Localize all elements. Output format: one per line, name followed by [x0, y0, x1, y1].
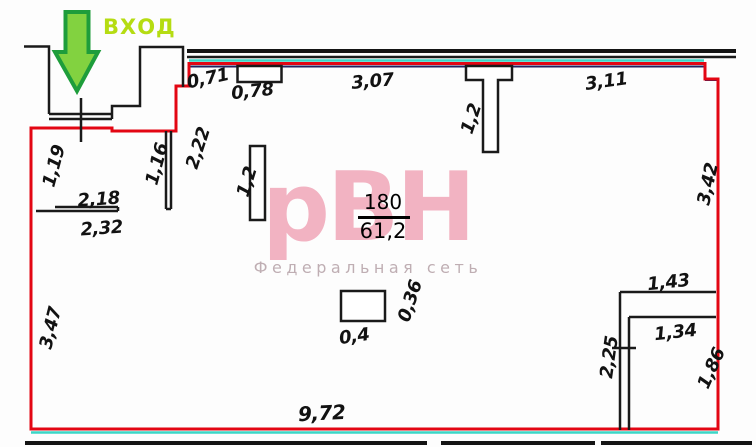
entrance-label: ВХОД	[103, 15, 176, 39]
dim-label: 0,71	[185, 64, 231, 93]
dim-label: 3,11	[584, 68, 629, 95]
dim-label: 1,86	[693, 345, 729, 392]
bottom-exterior-wall	[25, 433, 752, 444]
floor-plan: рВН Федеральная сеть	[0, 0, 756, 447]
dim-label: 2,32	[80, 217, 124, 241]
dim-label: 9,72	[297, 400, 346, 426]
room-area: 61,2	[360, 219, 407, 243]
storage-room	[612, 292, 716, 430]
watermark: рВН Федеральная сеть	[254, 153, 483, 277]
dim-label: 1,34	[653, 320, 697, 345]
dim-label: 3,07	[350, 69, 395, 94]
room-number: 180	[364, 190, 402, 214]
dim-label: 2,18	[77, 188, 121, 212]
dim-label: 0,4	[338, 324, 371, 349]
entrance-marker: ВХОД	[55, 12, 176, 91]
dim-label: 1,43	[646, 270, 690, 295]
dim-label: 1,2	[457, 101, 486, 136]
watermark-subtitle: Федеральная сеть	[254, 258, 483, 277]
dim-label: 1,19	[39, 143, 70, 189]
vestibule-left-wall	[24, 47, 49, 115]
utility-line-navy-step	[705, 80, 718, 86]
dim-label: 1,16	[142, 141, 173, 187]
dim-label: 3,47	[35, 304, 66, 351]
small-column	[341, 291, 385, 321]
entrance-arrow-icon	[55, 12, 98, 91]
dim-label: 0,78	[230, 79, 274, 104]
dim-label: 2,22	[182, 125, 215, 172]
vestibule-right-wall	[112, 47, 183, 119]
dim-label: 0,36	[394, 278, 427, 325]
